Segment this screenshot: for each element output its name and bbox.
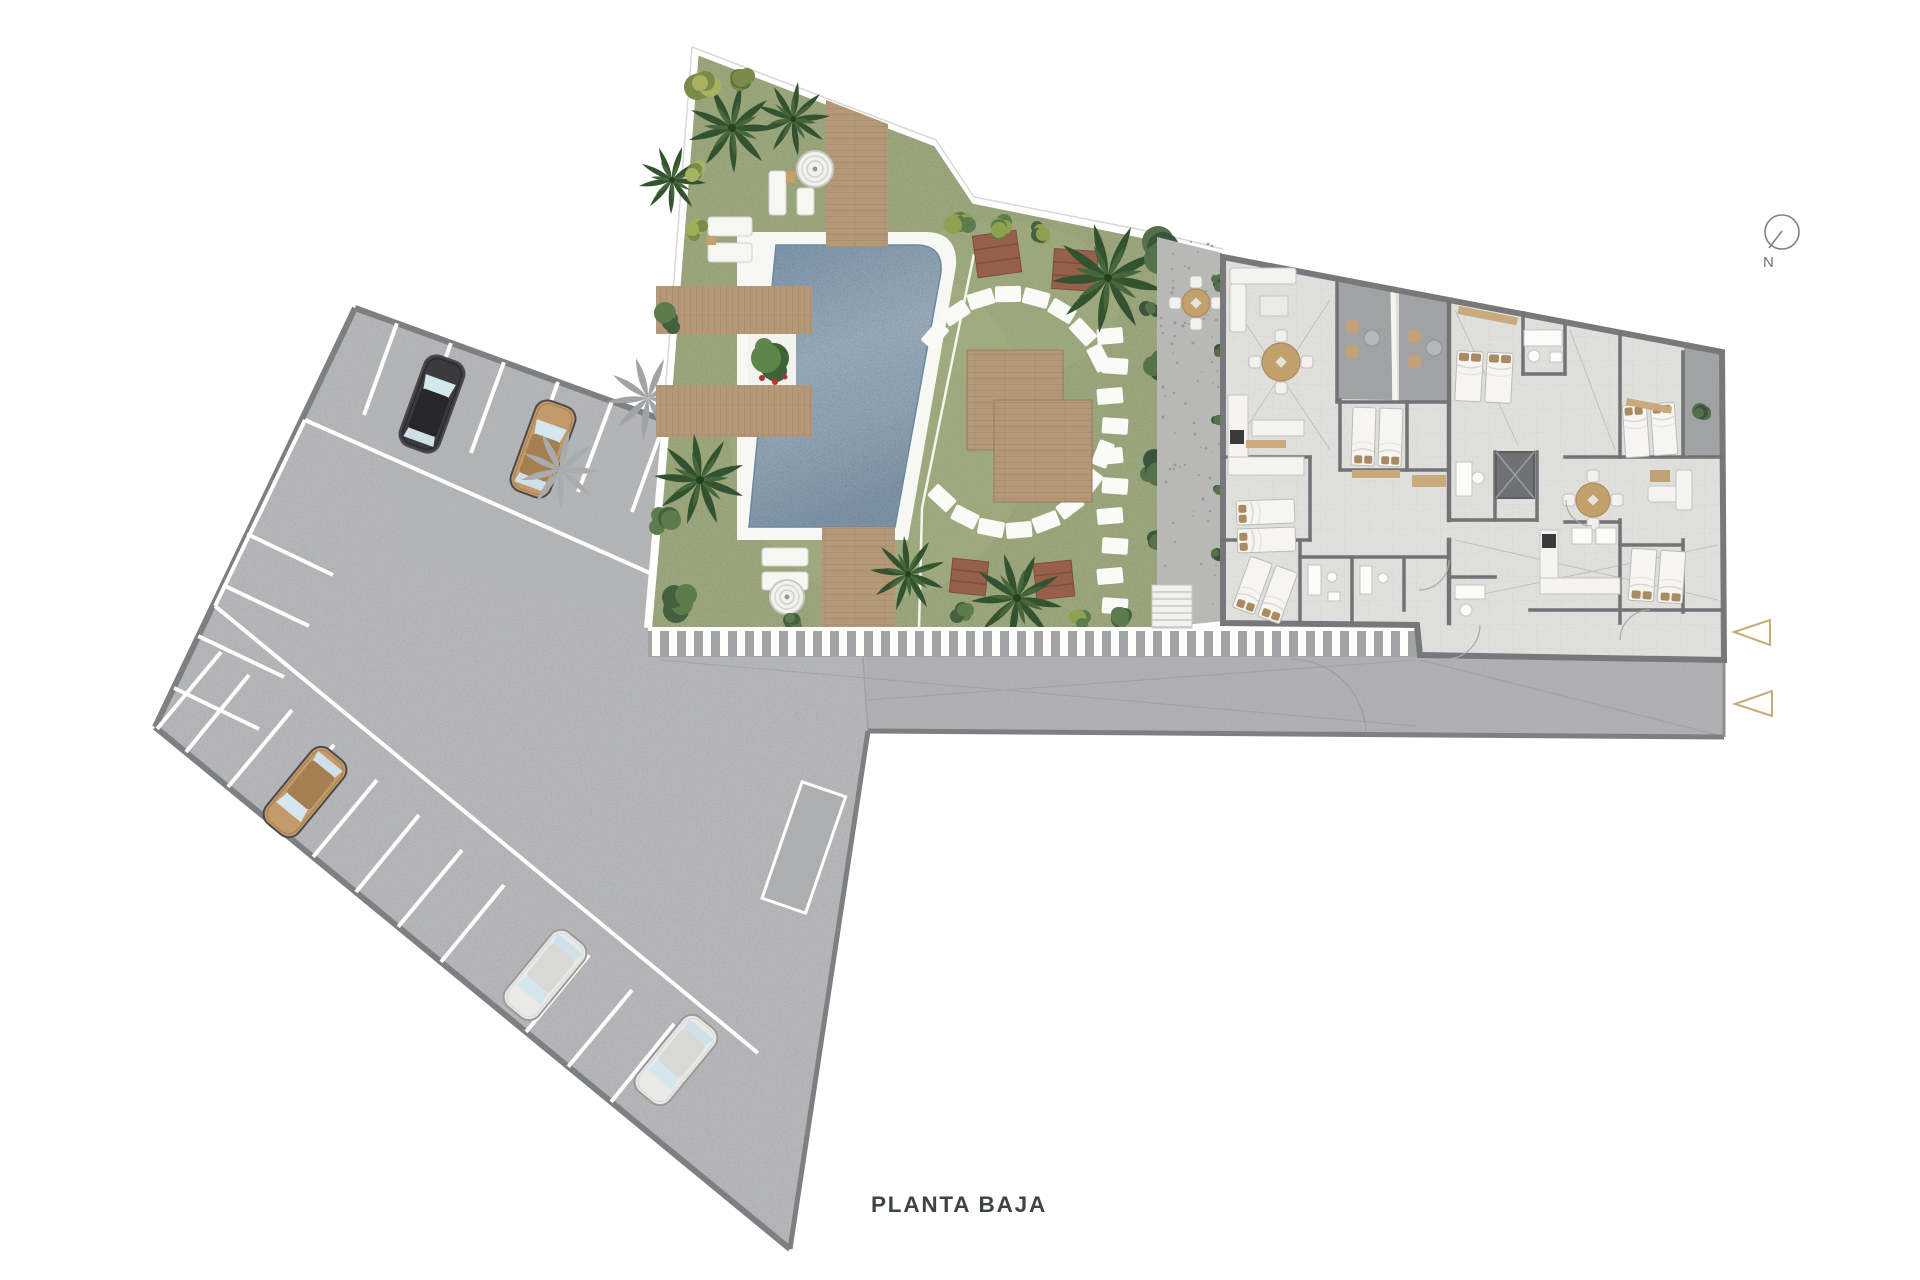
svg-text:N: N [1763,254,1774,271]
svg-text:PLANTA BAJA: PLANTA BAJA [871,1192,1047,1217]
